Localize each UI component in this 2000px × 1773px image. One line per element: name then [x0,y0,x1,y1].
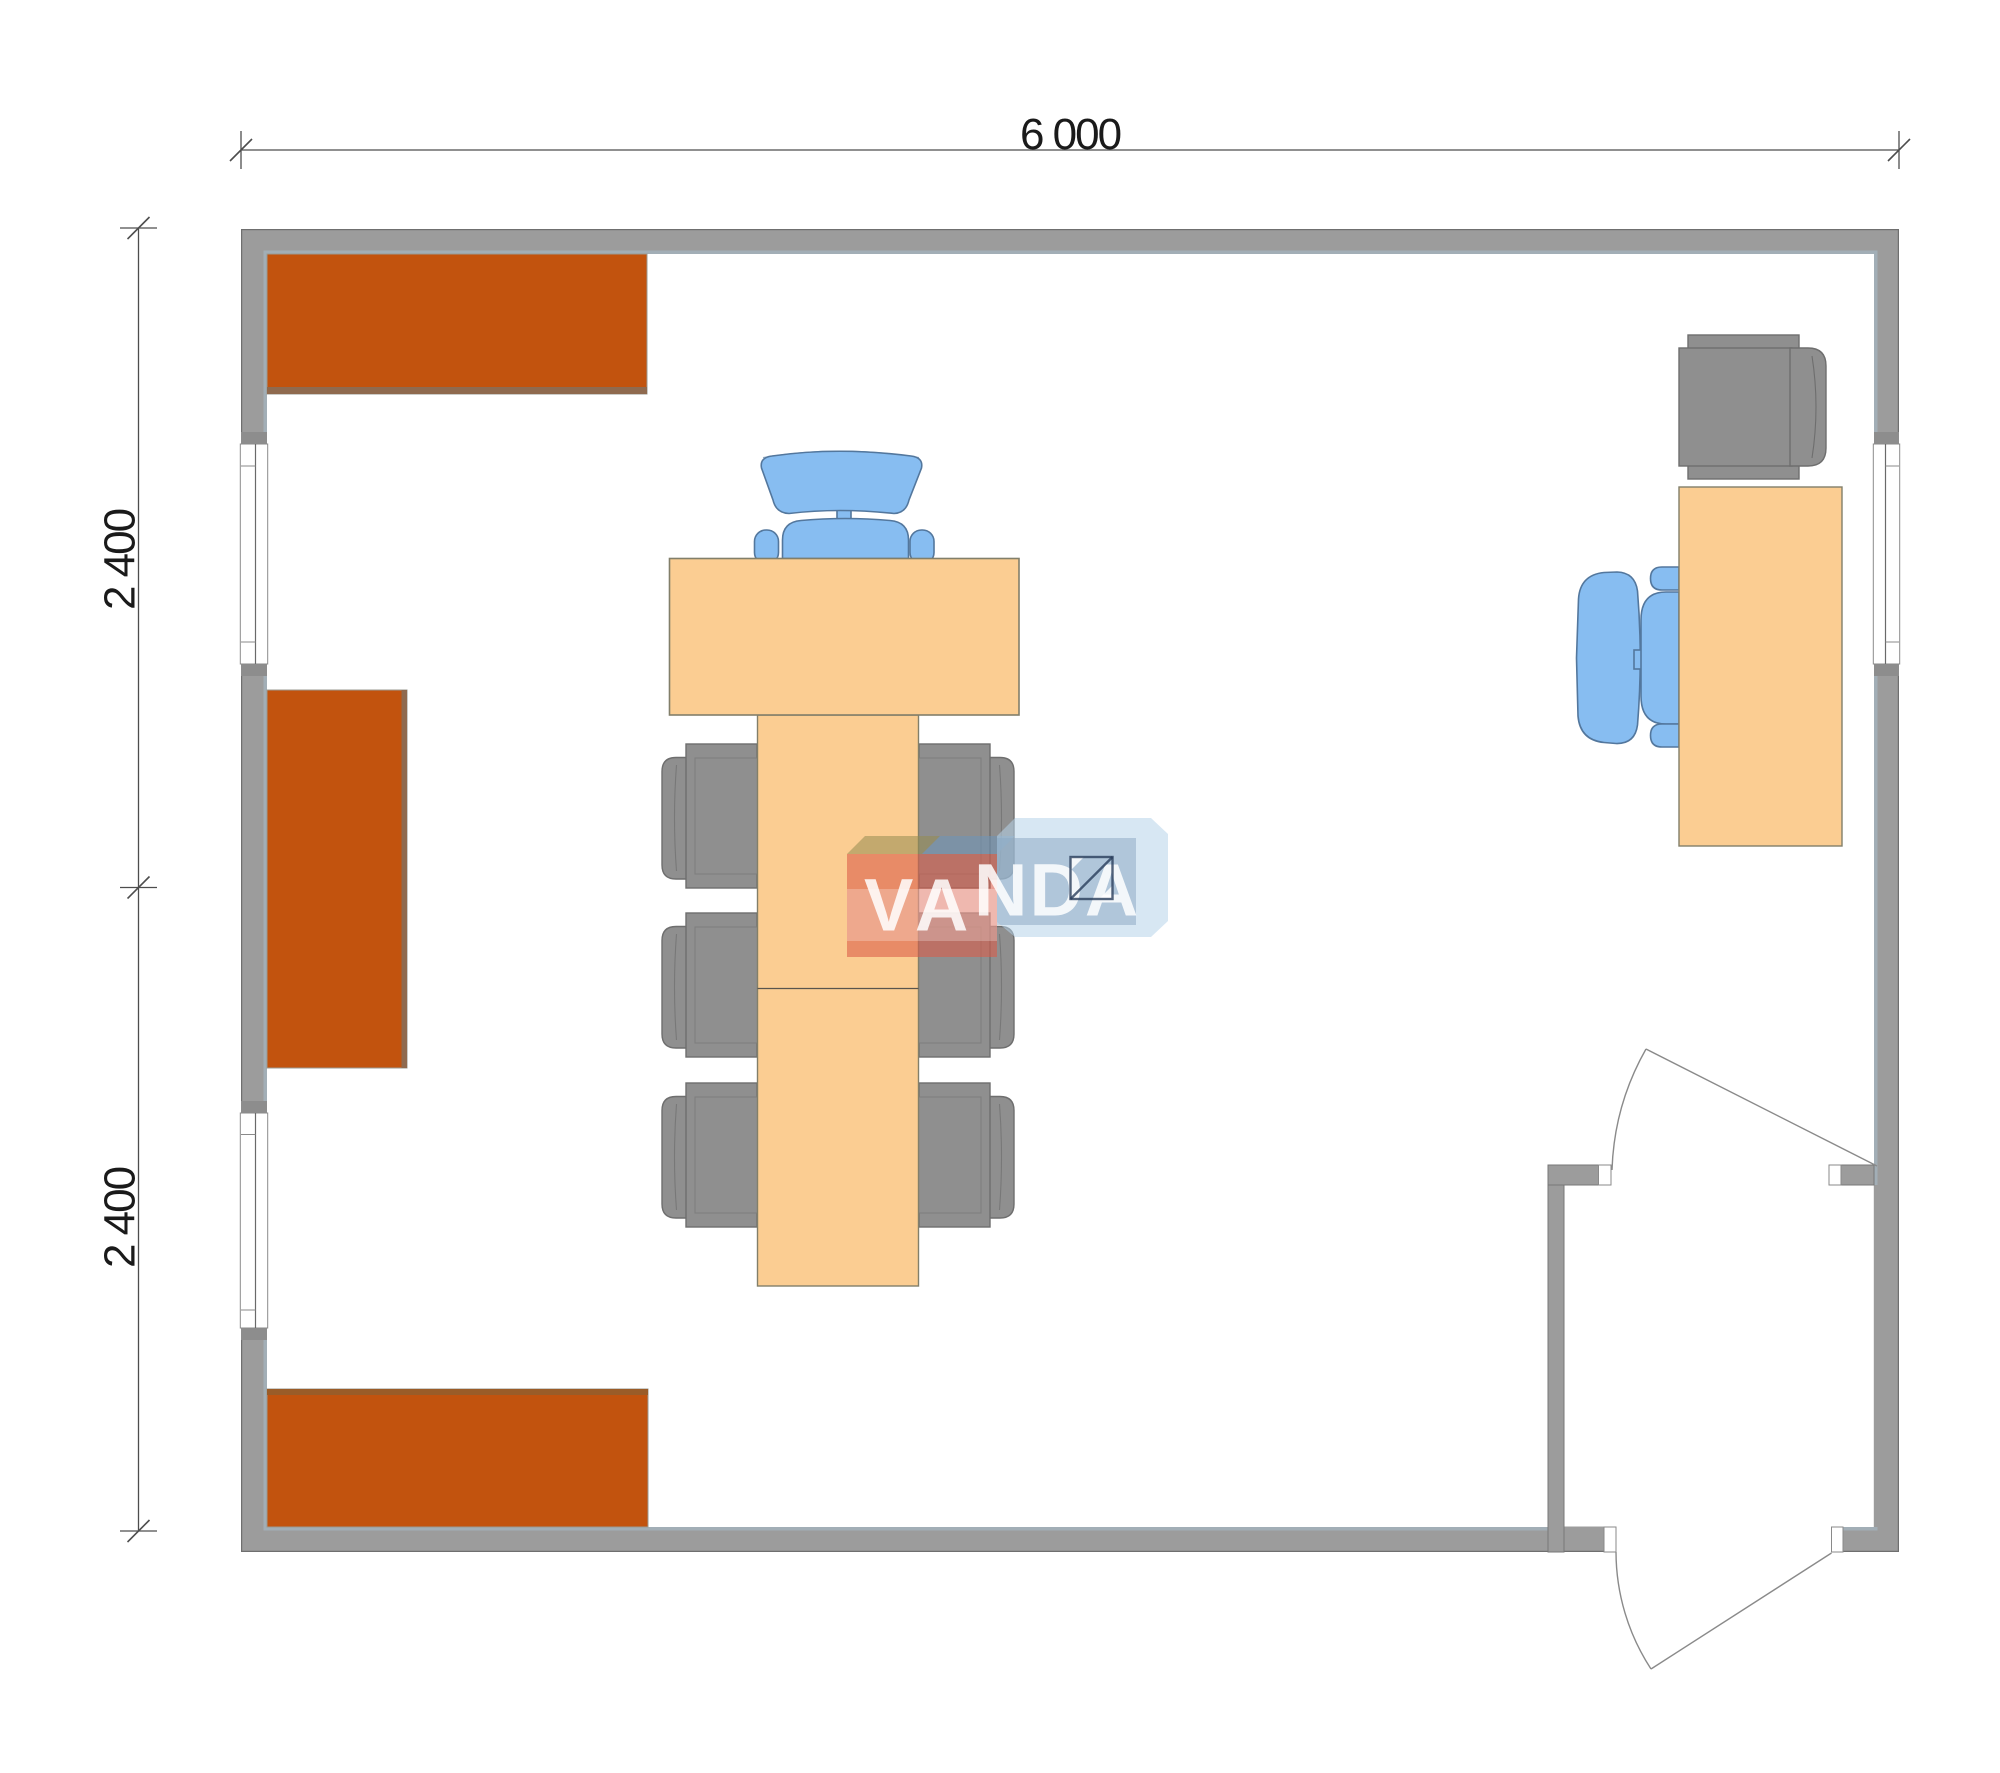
svg-text:VA: VA [864,864,975,947]
svg-text:2 400: 2 400 [96,509,145,610]
svg-text:6 000: 6 000 [1020,110,1121,159]
svg-text:NDA: NDA [974,849,1140,932]
svg-text:2 400: 2 400 [96,1167,145,1268]
